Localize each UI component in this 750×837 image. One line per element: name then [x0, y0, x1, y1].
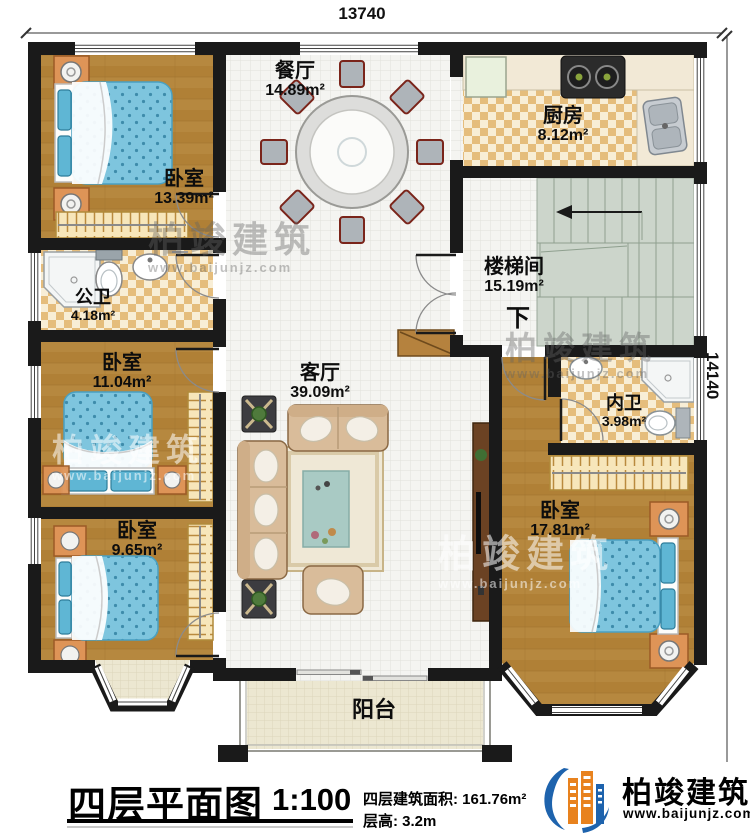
title-underline-shadow: [67, 826, 353, 828]
room-label-bedroom-mid-left: 卧室 11.04m²: [93, 352, 152, 392]
room-label-bedroom-bottom-left: 卧室 9.65m²: [112, 520, 163, 560]
floor-height-line: 层高: 3.2m: [363, 810, 436, 831]
stairs-down-label: 下: [506, 298, 530, 333]
brand-logo-icon: [538, 764, 618, 834]
room-label-stairwell: 楼梯间 15.19m²: [484, 256, 544, 296]
dimension-right: 14140: [702, 352, 722, 399]
floor-area-line: 四层建筑面积: 161.76m²: [363, 788, 526, 809]
room-label-living: 客厅 39.09m²: [290, 362, 350, 402]
room-label-balcony: 阳台: [352, 692, 396, 724]
brand-url: www.baijunjz.com: [623, 806, 750, 821]
room-label-public-bath: 公卫 4.18m²: [71, 288, 115, 323]
title-underline: [67, 819, 353, 823]
room-label-ensuite-bath: 内卫 3.98m²: [602, 394, 646, 429]
dimension-top: 13740: [338, 4, 385, 24]
bed-mid-left-icon: [43, 392, 213, 502]
room-label-kitchen: 厨房 8.12m²: [538, 105, 589, 145]
tv-cabinet-icon: [473, 423, 490, 621]
floorplan-page: 柏竣建筑 www.baijunjz.com 柏竣建筑 www.baijunjz.…: [0, 0, 750, 837]
title-block: 四层平面图 1:100 四层建筑面积: 161.76m² 层高: 3.2m 柏竣…: [0, 762, 750, 837]
room-label-bedroom-bottom-right: 卧室 17.81m²: [530, 500, 590, 540]
brand-lockup: 柏竣建筑 www.baijunjz.com: [538, 764, 750, 836]
room-label-dining: 餐厅 14.89m²: [265, 60, 325, 100]
room-label-bedroom-top-left: 卧室 13.39m²: [154, 168, 214, 208]
plan-scale: 1:100: [272, 782, 351, 818]
